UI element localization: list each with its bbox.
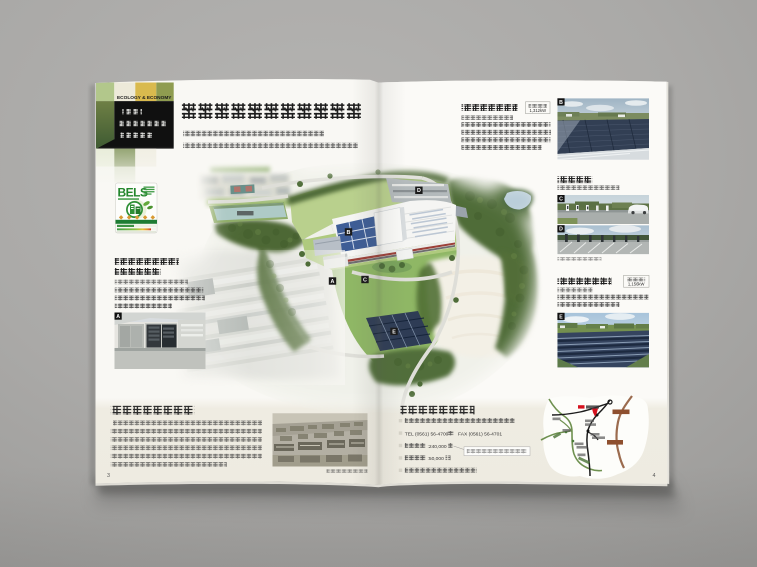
svg-text:B: B	[347, 230, 351, 236]
svg-text:1,156kW: 1,156kW	[628, 282, 645, 287]
svg-text::240,000: :240,000	[428, 444, 447, 450]
svg-text:1,312kW: 1,312kW	[530, 108, 547, 113]
svg-text:A: A	[331, 279, 335, 285]
svg-text:FAX (0561) 56-4701: FAX (0561) 56-4701	[458, 432, 502, 438]
svg-text:ECOLOGY & ECONOMY: ECOLOGY & ECONOMY	[117, 95, 172, 100]
svg-text:D: D	[559, 227, 563, 233]
svg-text::50,000: :50,000	[428, 456, 445, 462]
svg-text:E: E	[559, 314, 563, 320]
svg-text:B: B	[559, 100, 563, 106]
svg-text:D: D	[417, 188, 421, 194]
svg-text:A: A	[116, 314, 120, 320]
svg-text:4: 4	[653, 473, 656, 479]
svg-text:TEL (0561) 56-4700: TEL (0561) 56-4700	[405, 432, 449, 438]
svg-text:BELS: BELS	[118, 186, 149, 200]
svg-text:C: C	[559, 197, 563, 203]
svg-text:3: 3	[107, 473, 110, 479]
